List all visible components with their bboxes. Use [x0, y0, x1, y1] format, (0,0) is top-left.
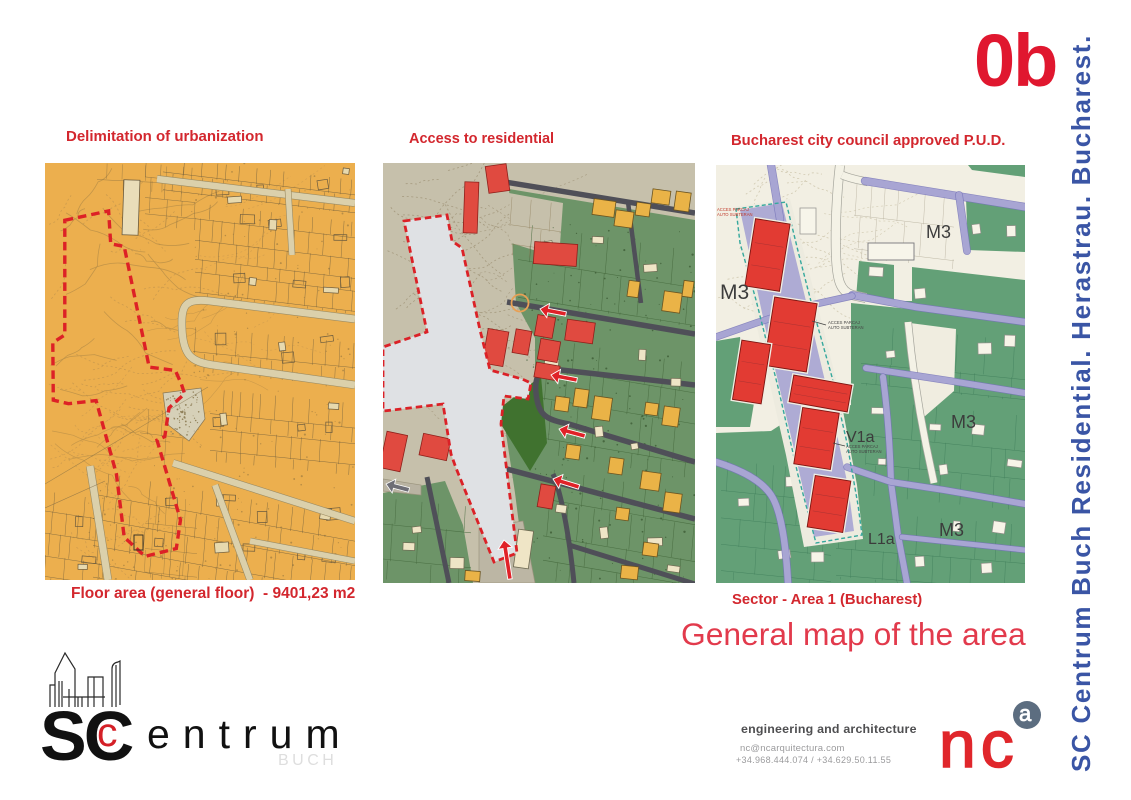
svg-text:M3: M3 — [926, 222, 951, 242]
svg-text:AUTO SUBTERAN: AUTO SUBTERAN — [846, 449, 882, 454]
svg-text:BUCH: BUCH — [278, 752, 337, 769]
svg-text:AUTO SUBTERAN: AUTO SUBTERAN — [828, 325, 864, 330]
svg-text:M3: M3 — [720, 281, 749, 304]
svg-text:M3: M3 — [951, 412, 976, 432]
svg-text:entrum: entrum — [147, 711, 348, 757]
svg-text:AUTO SUBTERAN: AUTO SUBTERAN — [717, 212, 753, 217]
svg-text:M3: M3 — [939, 520, 964, 540]
svg-text:L1a: L1a — [868, 531, 895, 548]
svg-text:c: c — [97, 709, 118, 755]
svg-text:SC: SC — [40, 697, 133, 775]
